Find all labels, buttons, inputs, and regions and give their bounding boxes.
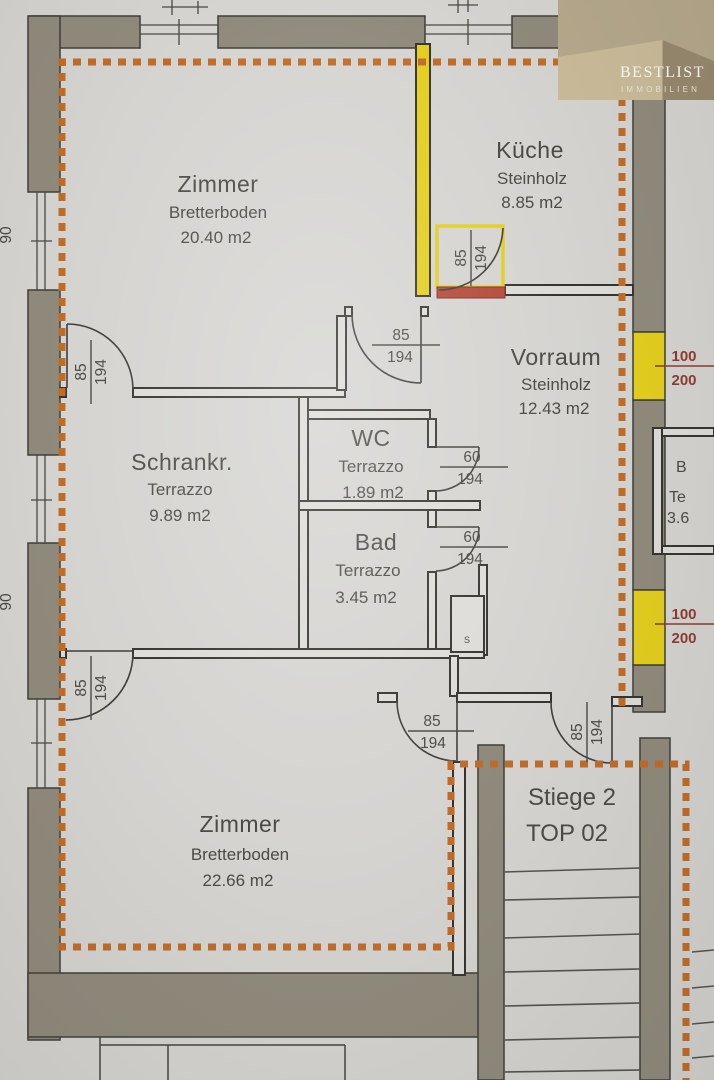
stairwell-label: Stiege 2 TOP 02 <box>526 784 616 847</box>
room-area: 12.43 m2 <box>519 399 590 418</box>
stair-line <box>692 950 714 952</box>
room-area: 3.45 m2 <box>335 588 396 607</box>
room-name: Bad <box>355 529 397 555</box>
stair-line <box>504 897 640 900</box>
wall <box>428 510 436 527</box>
logo-brand-text: BESTLIST <box>620 64 705 82</box>
dim-height: 200 <box>671 372 696 389</box>
room-floor: Terrazzo <box>147 480 212 499</box>
stair-line <box>692 1022 714 1024</box>
wall-left <box>28 290 60 455</box>
dim-width: 60 <box>463 529 481 546</box>
floorplan-svg: S <box>0 0 714 1080</box>
logo-sub-text: IMMOBILIEN <box>621 85 700 94</box>
stair-line <box>504 1070 640 1072</box>
wall-left <box>28 543 60 699</box>
window <box>31 455 52 543</box>
wall <box>133 649 484 658</box>
wall <box>428 491 436 501</box>
wall <box>337 316 346 390</box>
room-name: Zimmer <box>200 811 281 837</box>
room-area: 8.85 m2 <box>501 193 562 212</box>
wall <box>345 307 352 316</box>
stair-line <box>504 868 640 872</box>
kitchen-door-frame <box>437 226 503 287</box>
room-label-bad: Bad Terrazzo 3.45 m2 <box>335 529 400 607</box>
room-floor: Terrazzo <box>335 561 400 580</box>
neighbor-room: B Te 3.6 <box>653 428 714 554</box>
dim-height: 194 <box>457 551 483 568</box>
window <box>425 19 512 45</box>
room-label-schrank: Schrankr. Terrazzo 9.89 m2 <box>131 449 233 525</box>
stair-line <box>692 986 714 988</box>
dimension-tick <box>162 0 208 15</box>
terrace-outline <box>100 1037 345 1080</box>
dim-height: 194 <box>473 245 490 271</box>
wall <box>299 397 308 656</box>
room-floor: Terrazzo <box>338 457 403 476</box>
wall-top <box>218 16 425 48</box>
room-floor: Steinholz <box>521 375 591 394</box>
room-label-zimmer1: Zimmer Bretterboden 20.40 m2 <box>169 171 267 247</box>
dim-width: 100 <box>671 606 696 623</box>
stairwell-name: Stiege 2 <box>528 784 616 811</box>
room-area: 20.40 m2 <box>181 228 252 247</box>
room-name: Schrankr. <box>131 449 233 475</box>
neighbor-label: Te <box>669 489 686 506</box>
room-name: Vorraum <box>511 344 601 370</box>
stair-line <box>504 1037 640 1040</box>
room-name: Zimmer <box>178 171 259 197</box>
stairwell-top: TOP 02 <box>526 820 608 847</box>
wall <box>299 501 480 510</box>
wall <box>133 388 345 397</box>
wall <box>457 693 551 702</box>
dim-width: 60 <box>463 449 481 466</box>
wall <box>450 656 458 696</box>
shaft-mark: S <box>464 635 470 645</box>
dim-width: 85 <box>73 363 90 380</box>
edge-dim-fragment: 90 <box>0 593 15 611</box>
dim-height: 194 <box>93 359 110 385</box>
stair-line <box>504 1003 640 1006</box>
stair-line <box>504 934 640 938</box>
stairwell-west-wall <box>478 745 504 1080</box>
kitchen-yellow-wall <box>416 44 430 296</box>
dim-width: 85 <box>453 249 470 266</box>
neighbor-label: B <box>676 459 687 476</box>
room-labels: Zimmer Bretterboden 20.40 m2 Küche Stein… <box>131 137 616 890</box>
dim-height: 194 <box>387 349 413 366</box>
dim-width: 85 <box>392 327 409 344</box>
stair-line <box>692 1056 714 1058</box>
logo-bestlist: BESTLIST IMMOBILIEN <box>558 0 714 100</box>
room-label-zimmer2: Zimmer Bretterboden 22.66 m2 <box>191 811 289 890</box>
floorplan-page: S <box>0 0 714 1080</box>
room-label-vorraum: Vorraum Steinholz 12.43 m2 <box>511 344 601 418</box>
window <box>140 19 218 45</box>
window-100-lower <box>633 590 665 665</box>
room-floor: Bretterboden <box>169 203 267 222</box>
window <box>31 192 52 290</box>
dim-height: 194 <box>457 471 483 488</box>
dim-width: 100 <box>671 348 696 365</box>
room-area: 1.89 m2 <box>342 483 403 502</box>
wall <box>612 697 642 706</box>
dim-height: 194 <box>420 735 446 752</box>
wall-left <box>28 16 60 192</box>
wall <box>308 410 430 419</box>
dim-height: 194 <box>589 719 606 745</box>
wall <box>421 307 428 316</box>
kitchen-door-sill <box>437 287 505 298</box>
wall <box>428 572 436 652</box>
wall <box>453 762 465 975</box>
window <box>31 699 52 788</box>
wall <box>428 419 436 447</box>
stair-line <box>504 969 640 972</box>
dim-width: 85 <box>423 713 440 730</box>
room-area: 9.89 m2 <box>149 506 210 525</box>
dimension-tick <box>448 0 478 13</box>
room-floor: Steinholz <box>497 169 567 188</box>
edge-dim-fragment: 90 <box>0 226 15 244</box>
room-label-kueche: Küche Steinholz 8.85 m2 <box>496 137 567 212</box>
stairwell-east-wall <box>640 738 670 1080</box>
room-label-wc: WC Terrazzo 1.89 m2 <box>338 425 403 502</box>
neighbor-label: 3.6 <box>667 510 689 527</box>
dim-width: 85 <box>73 679 90 696</box>
wall <box>378 693 397 702</box>
room-name: Küche <box>496 137 564 163</box>
wall <box>505 285 633 295</box>
room-area: 22.66 m2 <box>203 871 274 890</box>
dim-width: 85 <box>569 723 586 740</box>
room-floor: Bretterboden <box>191 845 289 864</box>
dim-height: 194 <box>93 675 110 701</box>
outer-walls <box>28 16 670 1080</box>
wall <box>653 428 662 554</box>
wall-bottom <box>28 973 496 1037</box>
room-name: WC <box>351 425 390 451</box>
dim-height: 200 <box>671 630 696 647</box>
